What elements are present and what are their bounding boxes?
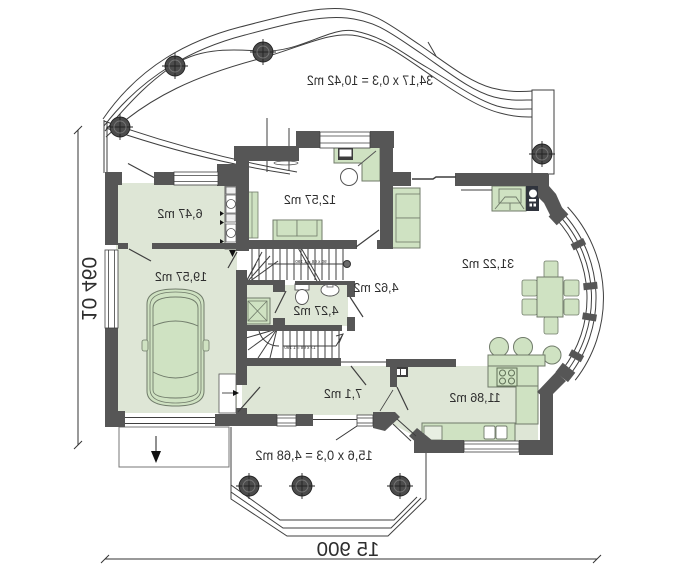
svg-text:4,27 m2: 4,27 m2 [293, 304, 338, 318]
svg-text:15 900: 15 900 [317, 538, 380, 561]
svg-text:11,86 m2: 11,86 m2 [449, 391, 500, 405]
svg-text:31,22 m2: 31,22 m2 [462, 257, 514, 271]
svg-text:6,47 m2: 6,47 m2 [157, 207, 202, 221]
svg-text:7,1 m2: 7,1 m2 [324, 387, 362, 401]
svg-text:12,57 m2: 12,57 m2 [284, 193, 336, 207]
svg-text:15,6 x 0,3 = 4,68 m2: 15,6 x 0,3 = 4,68 m2 [255, 448, 372, 463]
svg-text:4,62 m2: 4,62 m2 [353, 281, 398, 295]
svg-text:10 460: 10 460 [77, 257, 100, 321]
svg-text:17 x 68 = 1 190: 17 x 68 = 1 190 [284, 345, 316, 350]
svg-text:19,57 m2: 19,57 m2 [155, 270, 207, 284]
svg-text:34,17 x 0,3 = 10,42 m2: 34,17 x 0,3 = 10,42 m2 [307, 72, 433, 88]
svg-text:90 x 68 = 1 190: 90 x 68 = 1 190 [295, 259, 327, 264]
